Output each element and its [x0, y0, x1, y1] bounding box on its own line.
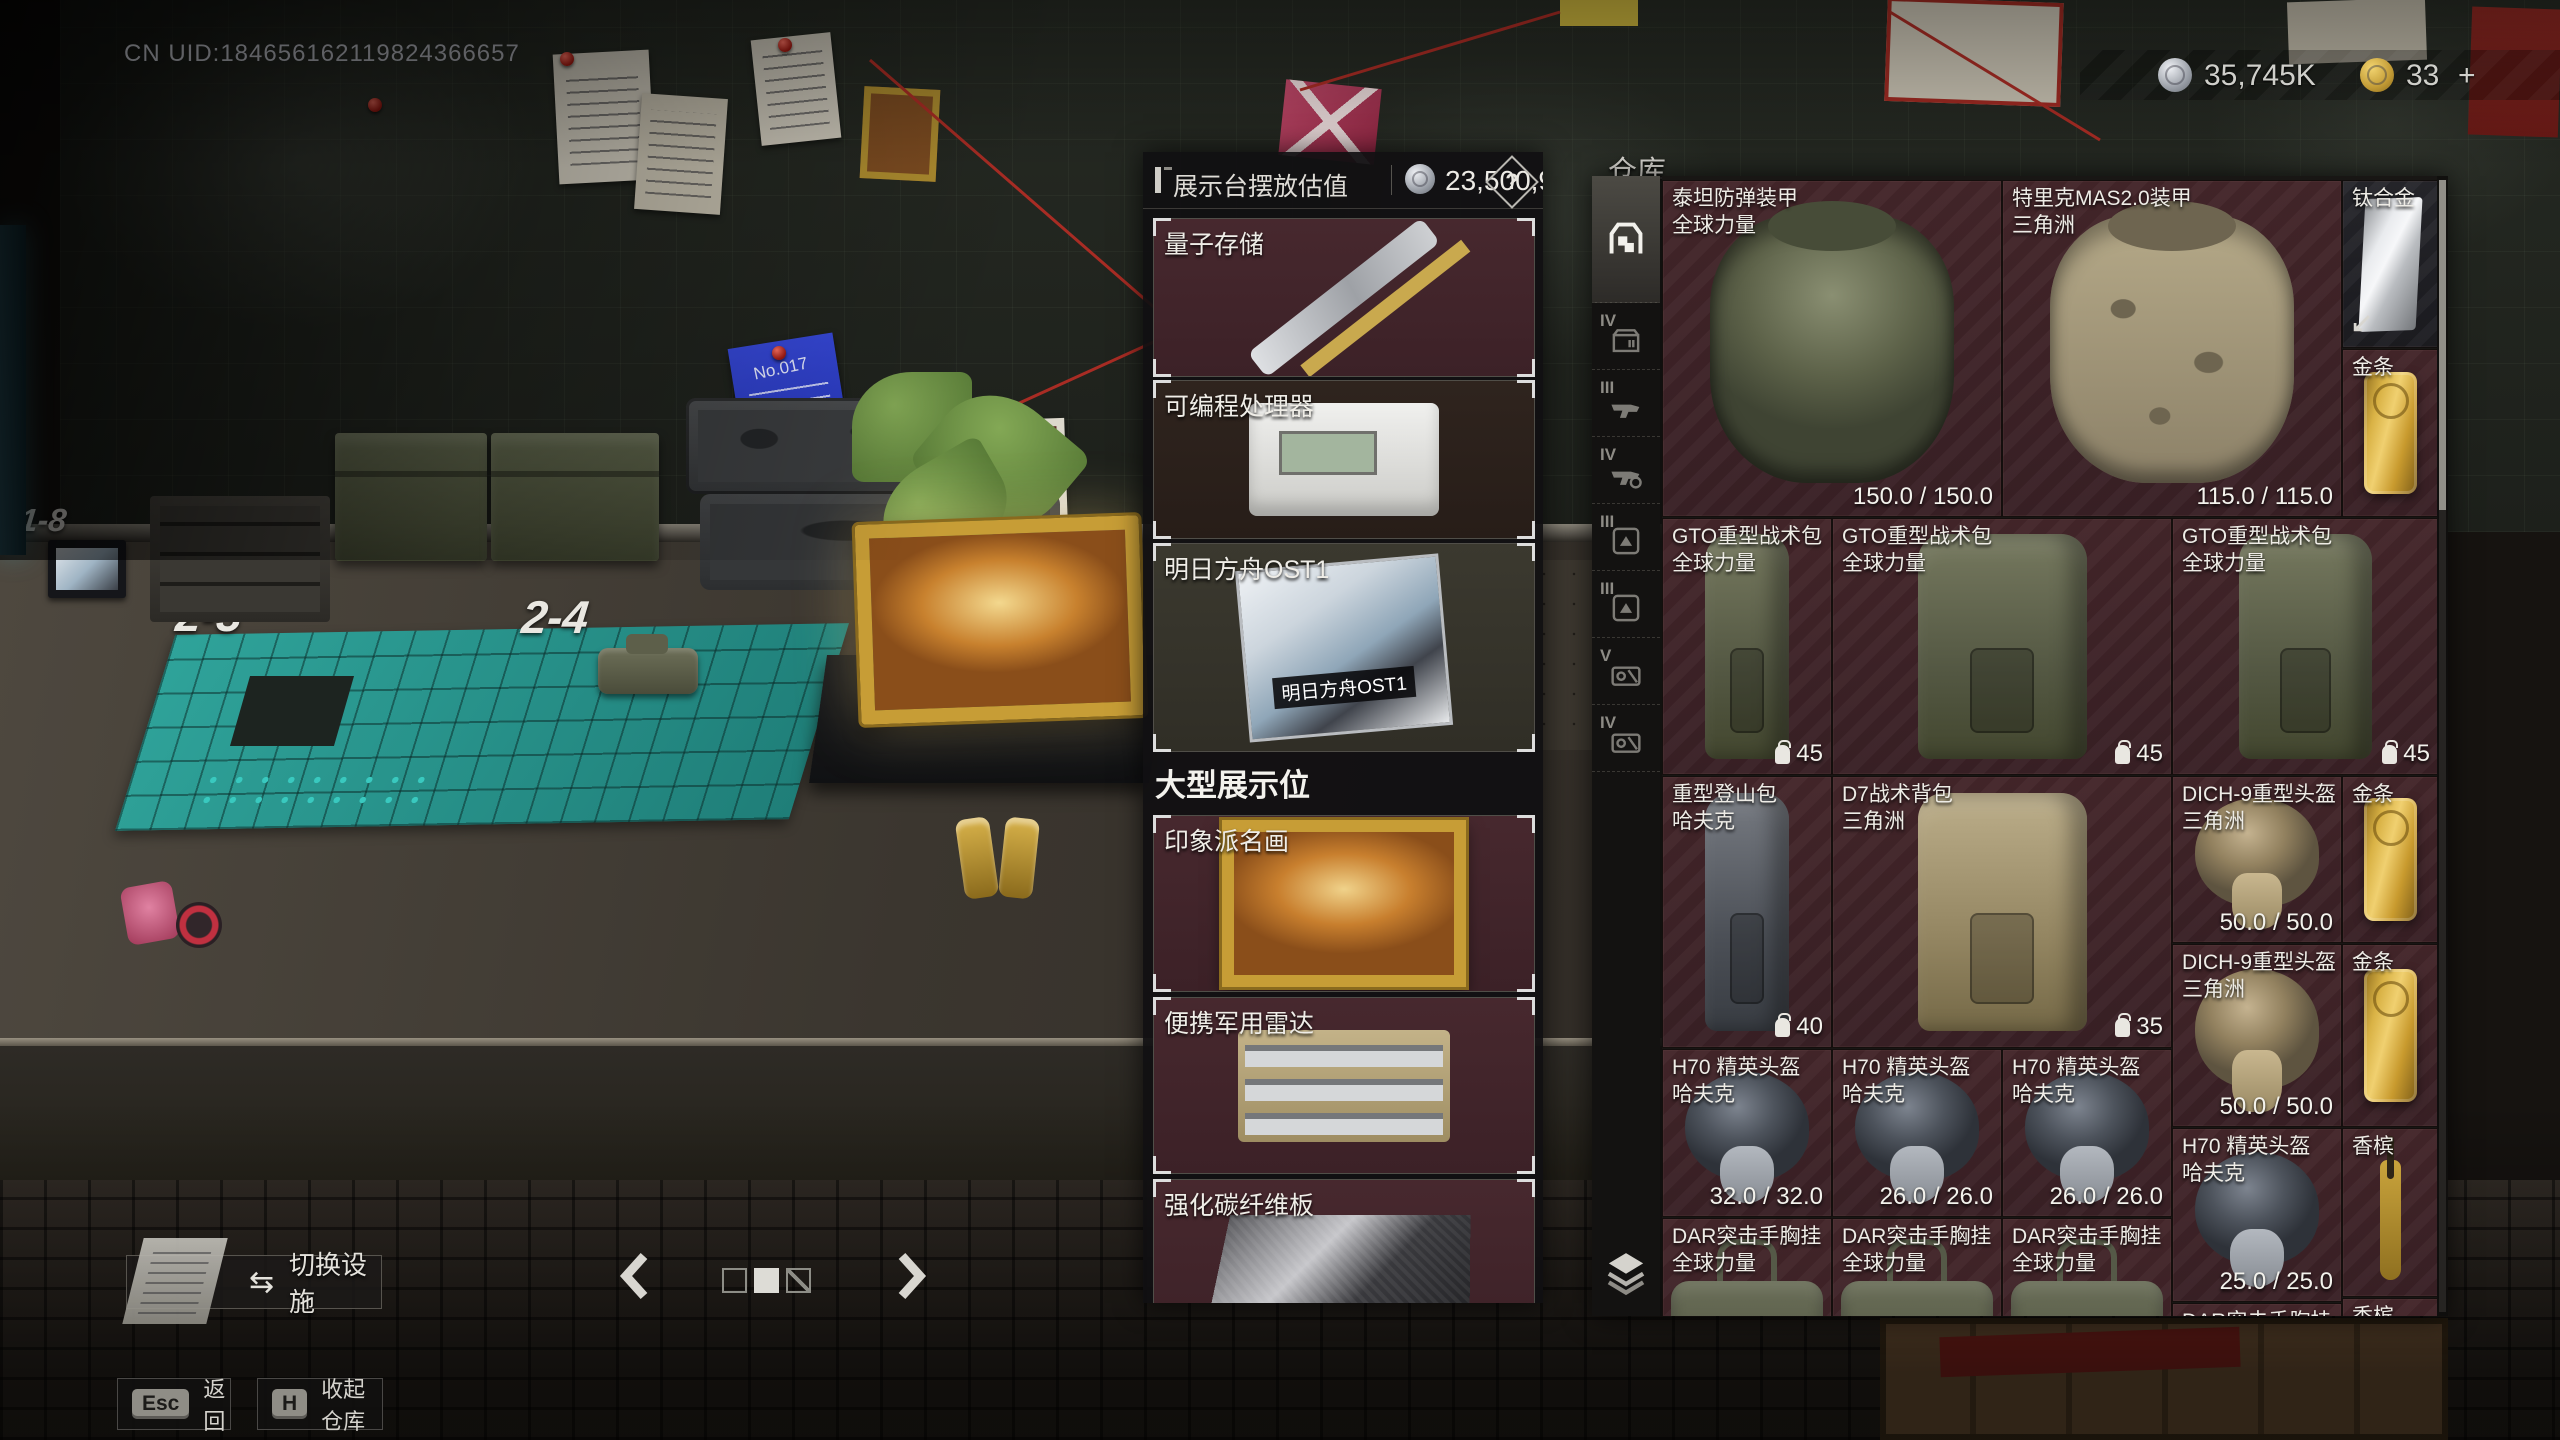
item-name: 泰坦防弹装甲: [1672, 187, 1798, 210]
capacity-icon: [1775, 1018, 1790, 1037]
rail-tab-keycard-iv[interactable]: IV: [1592, 705, 1660, 772]
warehouse-item[interactable]: GTO重型战术包全球力量 45: [1662, 518, 1832, 775]
item-faction: 全球力量: [2182, 551, 2434, 578]
item-count: 35: [2136, 1013, 2163, 1041]
capacity-icon: [2115, 745, 2130, 764]
item-faction: 全球力量: [1672, 551, 1827, 578]
item-count: 40: [1796, 1013, 1823, 1041]
rail-tab-rifle-iv[interactable]: IV: [1592, 437, 1660, 504]
item-durability: 25.0 / 25.0: [2220, 1268, 2333, 1296]
gold-binoculars: [950, 818, 1060, 904]
page-dot-1[interactable]: [722, 1268, 747, 1293]
switch-facility-button[interactable]: ⇆ 切换设施: [126, 1255, 382, 1309]
keycard-icon: [1609, 658, 1643, 692]
warehouse-item[interactable]: 香槟: [2342, 1128, 2437, 1297]
scrollbar-thumb[interactable]: [2439, 180, 2446, 510]
esc-label: 返回: [203, 1372, 225, 1436]
slot-item-name: 便携军用雷达: [1164, 1004, 1314, 1040]
slot-item-name: 印象派名画: [1164, 822, 1289, 858]
display-slot[interactable]: 便携军用雷达: [1153, 997, 1535, 1174]
prev-page-button[interactable]: [618, 1250, 652, 1302]
warehouse-item[interactable]: DICH-9重型头盔三角洲 50.0 / 50.0: [2172, 944, 2342, 1127]
rail-tab-plate-iii-2[interactable]: III: [1592, 571, 1660, 638]
slot-item-name: 明日方舟OST1: [1164, 550, 1329, 586]
cabinet-sticker: [176, 902, 222, 948]
esc-back-button[interactable]: Esc 返回: [117, 1378, 231, 1430]
rail-tab-warehouse[interactable]: [1592, 176, 1660, 303]
item-name: H70 精英头盔: [1672, 1056, 1800, 1079]
item-name: DICH-9重型头盔: [2182, 951, 2336, 974]
item-faction: 哈夫克: [2012, 1082, 2167, 1109]
warehouse-item[interactable]: 金条: [2342, 349, 2437, 517]
player-uid: CN UID:184656162119824366657: [124, 40, 520, 68]
header-bar-icon: [1155, 167, 1161, 193]
item-durability: 50.0 / 50.0: [2220, 1093, 2333, 1121]
tank-model: [598, 648, 698, 694]
item-name: 香槟: [2352, 1135, 2394, 1158]
warehouse-item[interactable]: 金条: [2342, 776, 2437, 943]
esc-keycap: Esc: [132, 1389, 189, 1419]
warehouse-item[interactable]: D7战术背包三角洲 35: [1832, 776, 2172, 1048]
warehouse-grid: 泰坦防弹装甲全球力量 150.0 / 150.0 特里克MAS2.0装甲三角洲 …: [1662, 176, 2437, 1316]
warehouse-item[interactable]: DAR突击手胸挂全球力量: [2002, 1218, 2172, 1316]
gold-coin-icon: [2360, 58, 2394, 92]
item-name: 钛合金: [2352, 187, 2415, 210]
silver-amount: 35,745K: [2204, 59, 2316, 93]
item-name: 金条: [2352, 951, 2394, 974]
warehouse-item[interactable]: DAR突击手胸挂: [2172, 1303, 2342, 1316]
display-slot[interactable]: 量子存储: [1153, 218, 1535, 377]
cabinet-sticker: [119, 880, 180, 946]
layers-icon: [1602, 1248, 1650, 1296]
warehouse-item[interactable]: 特里克MAS2.0装甲三角洲 115.0 / 115.0: [2002, 180, 2342, 517]
large-slot-section-title: 大型展示位: [1155, 760, 1310, 805]
transfer-icon: [2351, 312, 2373, 339]
item-faction: 哈夫克: [1842, 1082, 1997, 1109]
rail-tab-keycard-v[interactable]: V: [1592, 638, 1660, 705]
currency-bar: 35,745K 33 +: [2080, 50, 2560, 100]
item-durability: 115.0 / 115.0: [2196, 483, 2333, 511]
item-name: 重型登山包: [1672, 783, 1777, 806]
display-slot-label-2-4: 2-4: [519, 590, 591, 644]
item-faction: 哈夫克: [1672, 1082, 1827, 1109]
cutting-mat-dots: [194, 770, 447, 810]
item-name: GTO重型战术包: [1842, 525, 1992, 548]
rail-layers-button[interactable]: [1602, 1248, 1650, 1301]
item-name: GTO重型战术包: [2182, 525, 2332, 548]
display-valuation-panel: 展示台摆放估值 23,500,969 ? 量子存储 可编程处理器 明日方舟OST…: [1143, 152, 1543, 1303]
item-name: DICH-9重型头盔: [2182, 783, 2336, 806]
item-durability: 26.0 / 26.0: [2050, 1183, 2163, 1211]
item-count: 45: [2136, 740, 2163, 768]
warehouse-item[interactable]: H70 精英头盔哈夫克 26.0 / 26.0: [1832, 1049, 2002, 1217]
next-page-button[interactable]: [894, 1250, 928, 1302]
valuation-title: 展示台摆放估值: [1173, 167, 1348, 203]
rail-tab-plate-iii[interactable]: III: [1592, 504, 1660, 571]
warehouse-item[interactable]: H70 精英头盔哈夫克 25.0 / 25.0: [2172, 1128, 2342, 1302]
item-name: 金条: [2352, 783, 2394, 806]
warehouse-scrollbar[interactable]: [2439, 180, 2446, 1312]
warehouse-rail: IV III IV III: [1592, 176, 1660, 1316]
warehouse-item[interactable]: DAR突击手胸挂全球力量: [1662, 1218, 1832, 1316]
page-dot-3[interactable]: [786, 1268, 811, 1293]
item-name: 金条: [2352, 356, 2394, 379]
slot-item-name: 强化碳纤维板: [1164, 1186, 1314, 1222]
item-faction: 全球力量: [1672, 213, 1997, 240]
item-durability: 150.0 / 150.0: [1853, 483, 1993, 511]
collapse-warehouse-label: 收起仓库: [321, 1372, 368, 1436]
item-name: DAR突击手胸挂: [1672, 1225, 1821, 1248]
item-faction: 全球力量: [2012, 1251, 2167, 1278]
warehouse-icon: [1605, 218, 1647, 260]
item-faction: 全球力量: [1842, 551, 2167, 578]
item-name: DAR突击手胸挂: [2012, 1225, 2161, 1248]
item-faction: 哈夫克: [1672, 809, 1827, 836]
h-keycap: H: [272, 1389, 307, 1419]
item-faction: 全球力量: [1672, 1251, 1827, 1278]
warehouse-item[interactable]: 香槟: [2342, 1298, 2437, 1316]
slot-item-name: 量子存储: [1164, 225, 1264, 261]
slot-item-name: 可编程处理器: [1164, 387, 1314, 423]
capacity-icon: [2382, 745, 2397, 764]
item-name: 特里克MAS2.0装甲: [2012, 187, 2192, 210]
item-count: 45: [2403, 740, 2430, 768]
warehouse-item[interactable]: 泰坦防弹装甲全球力量 150.0 / 150.0: [1662, 180, 2002, 517]
item-name: DAR突击手胸挂: [1842, 1225, 1991, 1248]
rail-tab-container-iv[interactable]: IV: [1592, 303, 1660, 370]
help-button[interactable]: ?: [1485, 155, 1539, 209]
warehouse-item[interactable]: GTO重型战术包全球力量 45: [1832, 518, 2172, 775]
item-name: H70 精英头盔: [1842, 1056, 1970, 1079]
item-durability: 32.0 / 32.0: [1710, 1183, 1823, 1211]
switch-facility-label: 切换设施: [289, 1245, 381, 1319]
display-slot[interactable]: 明日方舟OST1 明日方舟OST1: [1153, 543, 1535, 752]
coin-icon: [1405, 164, 1435, 194]
display-slot[interactable]: 强化碳纤维板: [1153, 1179, 1535, 1303]
facility-pager: [618, 1250, 928, 1306]
item-faction: 哈夫克: [2182, 1161, 2337, 1188]
valuation-header: 展示台摆放估值 23,500,969 ?: [1143, 152, 1543, 209]
item-name: DAR突击手胸挂: [2182, 1310, 2331, 1316]
item-faction: 三角洲: [2182, 977, 2337, 1004]
item-durability: 50.0 / 50.0: [2220, 909, 2333, 937]
item-name: 香槟: [2352, 1305, 2394, 1316]
warehouse-item[interactable]: 重型登山包哈夫克 40: [1662, 776, 1832, 1048]
item-durability: 26.0 / 26.0: [1880, 1183, 1993, 1211]
warehouse-panel: IV III IV III: [1592, 176, 2448, 1316]
display-slot[interactable]: 可编程处理器: [1153, 380, 1535, 539]
capacity-icon: [2115, 1018, 2130, 1037]
warehouse-item[interactable]: 金条: [2342, 944, 2437, 1127]
item-faction: 全球力量: [1842, 1251, 1997, 1278]
mat-dark-square: [230, 676, 354, 746]
divider: [1391, 165, 1392, 195]
add-currency-button[interactable]: +: [2458, 59, 2476, 93]
warehouse-item[interactable]: GTO重型战术包全球力量 45: [2172, 518, 2437, 775]
warehouse-item[interactable]: H70 精英头盔哈夫克 26.0 / 26.0: [2002, 1049, 2172, 1217]
silver-coin-icon: [2158, 58, 2192, 92]
item-name: H70 精英头盔: [2012, 1056, 2140, 1079]
collapse-warehouse-button[interactable]: H 收起仓库: [257, 1378, 383, 1430]
item-name: D7战术背包: [1842, 783, 1953, 806]
item-name: GTO重型战术包: [1672, 525, 1822, 548]
display-slot[interactable]: 印象派名画: [1153, 815, 1535, 992]
rail-tab-rifle-iii[interactable]: III: [1592, 370, 1660, 437]
item-count: 45: [1796, 740, 1823, 768]
game-screen: No.017 2-3 2-4 1-8 CN UID:18465: [0, 0, 2560, 1440]
page-dot-2-current[interactable]: [754, 1268, 779, 1293]
warehouse-item[interactable]: DICH-9重型头盔三角洲 50.0 / 50.0: [2172, 776, 2342, 943]
item-faction: 三角洲: [1842, 809, 2167, 836]
warehouse-item[interactable]: 钛合金: [2342, 180, 2437, 348]
item-faction: 三角洲: [2182, 809, 2337, 836]
warehouse-item[interactable]: DAR突击手胸挂全球力量: [1832, 1218, 2002, 1316]
capacity-icon: [1775, 745, 1790, 764]
item-name: H70 精英头盔: [2182, 1135, 2310, 1158]
warehouse-item[interactable]: H70 精英头盔哈夫克 32.0 / 32.0: [1662, 1049, 1832, 1217]
gold-amount: 33: [2406, 59, 2439, 93]
swap-arrows-icon: ⇆: [249, 1265, 274, 1300]
item-faction: 三角洲: [2012, 213, 2337, 240]
